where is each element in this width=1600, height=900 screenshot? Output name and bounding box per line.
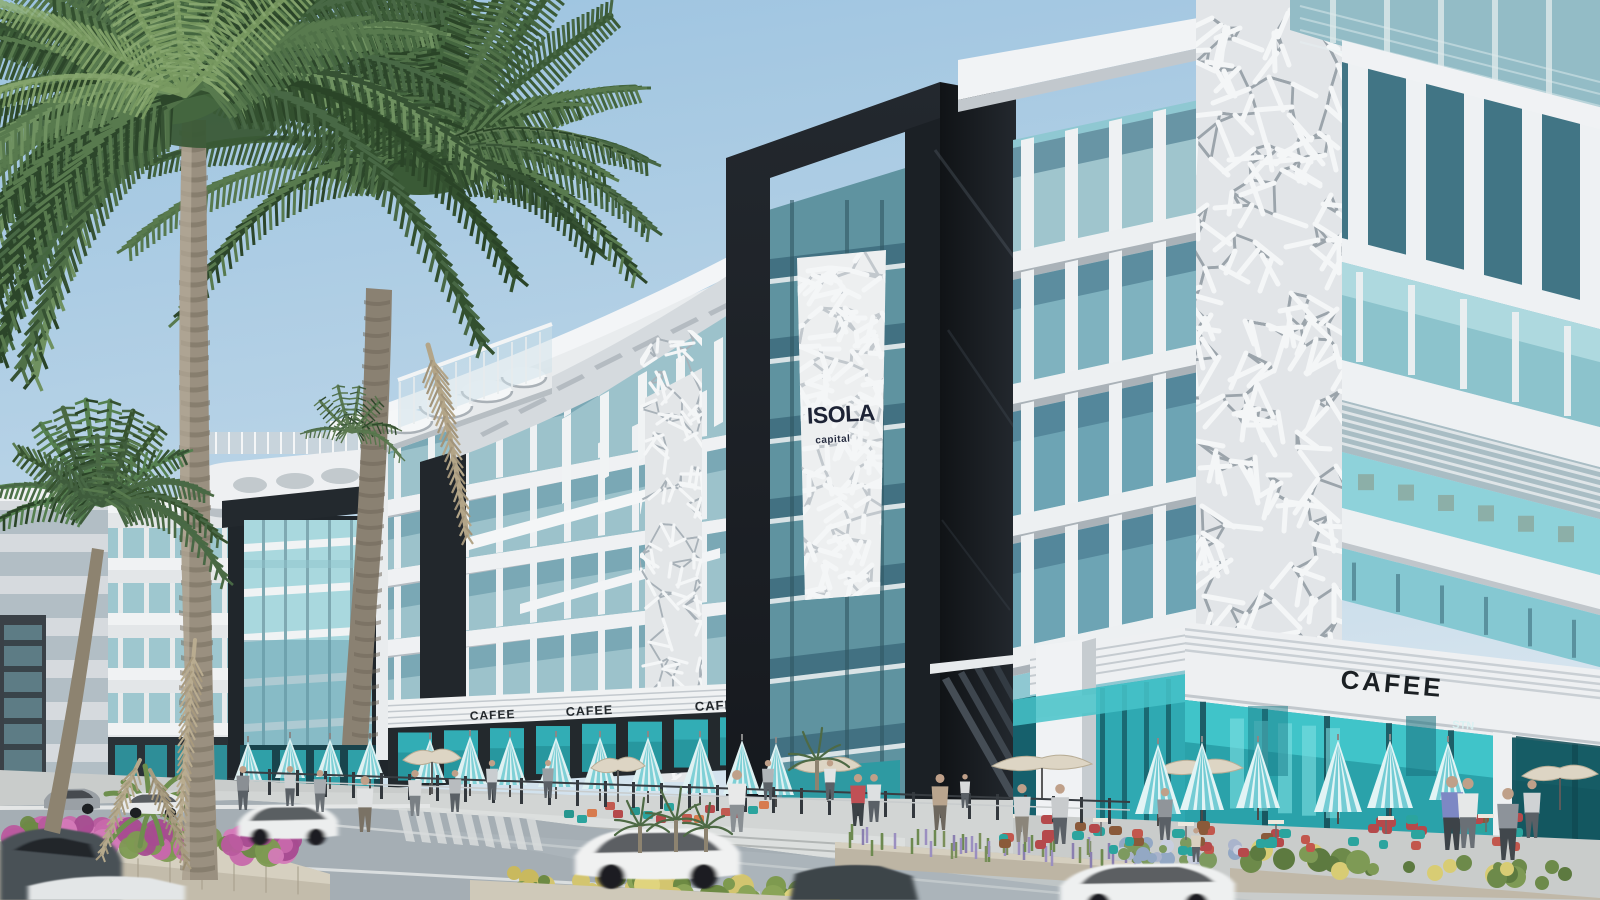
svg-text:ISOLA: ISOLA xyxy=(806,399,875,429)
svg-text:capital: capital xyxy=(815,433,851,446)
svg-text:CAFEE: CAFEE xyxy=(470,707,516,723)
svg-text:STN: STN xyxy=(1452,719,1475,733)
svg-text:CAFEE: CAFEE xyxy=(566,703,614,719)
